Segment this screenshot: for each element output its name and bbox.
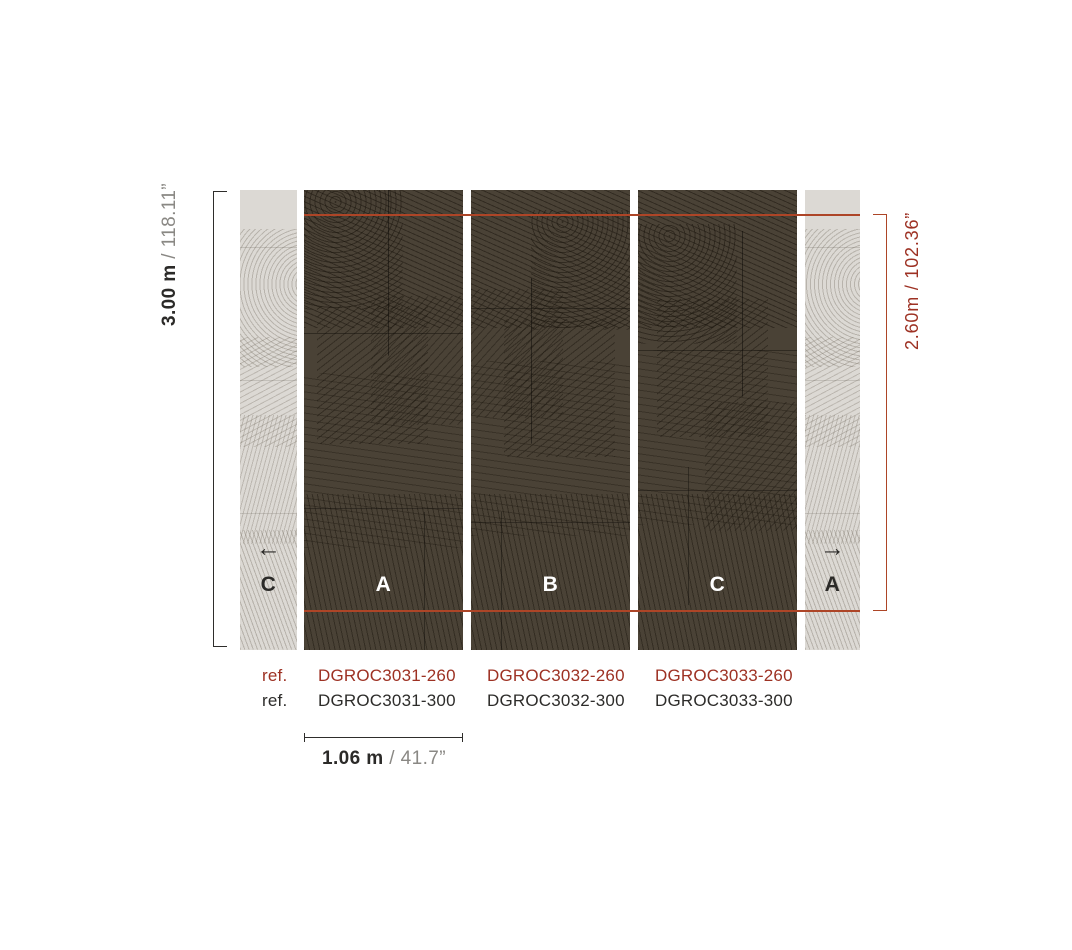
panel-width-label: 1.06 m / 41.7”	[284, 748, 484, 770]
wallpaper-panel-diagram: 3.00 m / 118.11” ← C A B C → A 2.60m / 1…	[0, 0, 1072, 950]
pattern-height-label: 2.60m / 102.36”	[903, 220, 937, 350]
panel-right-partial: → A	[805, 190, 860, 650]
panel-left-partial: ← C	[240, 190, 297, 650]
pattern-height-bracket	[873, 214, 887, 611]
total-height-metric: 3.00 m	[159, 264, 180, 326]
total-height-imperial: 118.11”	[159, 183, 180, 247]
panel-letter-c: C	[638, 574, 797, 595]
ref-code-3033-300: DGROC3033-300	[655, 691, 793, 711]
total-height-label: 3.00 m / 118.11”	[160, 186, 192, 326]
panel-letter-a: A	[304, 574, 463, 595]
arrow-left-icon: ←	[240, 535, 297, 561]
panel-width-metric: 1.06 m	[322, 748, 384, 769]
panel-width-imperial: 41.7”	[401, 748, 446, 769]
panel-a: A	[304, 190, 463, 650]
ref-label-300: ref.	[262, 691, 287, 711]
panel-width-line	[304, 733, 463, 742]
dimension-separator: /	[384, 748, 401, 769]
ref-code-3032-260: DGROC3032-260	[487, 666, 625, 686]
ref-code-3031-260: DGROC3031-260	[318, 666, 456, 686]
dimension-separator: /	[159, 247, 180, 264]
ref-code-3031-300: DGROC3031-300	[318, 691, 456, 711]
panel-c: C	[638, 190, 797, 650]
panel-letter-b: B	[471, 574, 630, 595]
panel-letter-right: A	[805, 574, 860, 595]
ref-code-3033-260: DGROC3033-260	[655, 666, 793, 686]
panel-b: B	[471, 190, 630, 650]
pattern-height-top-line	[304, 214, 860, 216]
total-height-bracket	[213, 191, 227, 647]
ref-label-260: ref.	[262, 666, 287, 686]
pattern-height-bottom-line	[304, 610, 860, 612]
ref-code-3032-300: DGROC3032-300	[487, 691, 625, 711]
panel-letter-left: C	[240, 574, 297, 595]
arrow-right-icon: →	[805, 535, 860, 561]
